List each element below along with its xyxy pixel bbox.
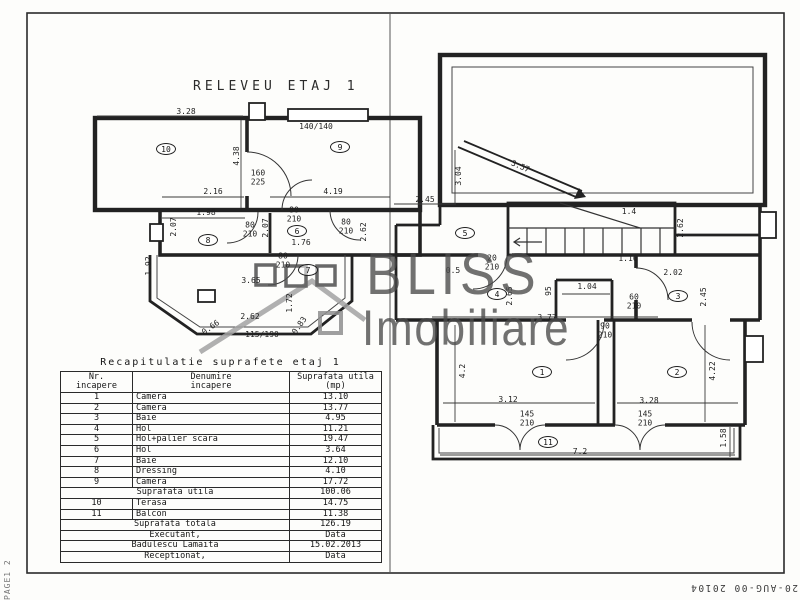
dimension-label: 145 210 [638, 411, 652, 428]
table-header-row: Nr. incapere Denumire incapere Suprafata… [61, 372, 382, 393]
room-number: 11 [538, 436, 558, 448]
table-cell: 13.77 [290, 403, 382, 414]
table-cell: 11.38 [290, 509, 382, 520]
table-row: 8Dressing4.10 [61, 467, 382, 478]
table-cell: Camera [133, 393, 290, 404]
dimension-label: 4.38 [233, 146, 242, 165]
table-cell: 9 [61, 477, 133, 488]
header-nr: Nr. incapere [61, 372, 133, 393]
scanned-document-page: RELEVEU ETAJ 1 3.28140/1404.38160 2252.1… [0, 0, 800, 600]
dimension-label: 145 210 [520, 411, 534, 428]
table-cell: 1 [61, 393, 133, 404]
table-cell: 4 [61, 424, 133, 435]
table-row: Badulescu Lamaita15.02.2013 [61, 541, 382, 552]
table-cell: 8 [61, 467, 133, 478]
header-suprafata: Suprafata utila (mp) [290, 372, 382, 393]
dimension-label: 160 225 [251, 170, 265, 187]
table-row: 7Baie12.10 [61, 456, 382, 467]
room-number: 10 [156, 143, 176, 155]
table-row: 5Hol+palier scara19.47 [61, 435, 382, 446]
table-cell: 3 [61, 414, 133, 425]
header-denumire: Denumire incapere [133, 372, 290, 393]
dimension-label: 3.04 [455, 166, 464, 185]
watermark-house-logo [200, 265, 365, 352]
dimension-label: 3.28 [639, 397, 658, 406]
table-cell: Badulescu Lamaita [61, 541, 290, 552]
table-cell: Suprafata utila [61, 488, 290, 499]
table-cell: Hol [133, 445, 290, 456]
table-cell: 7 [61, 456, 133, 467]
table-cell: Dressing [133, 467, 290, 478]
dimension-label: 2.62 [240, 313, 259, 322]
dimension-label: 1.16 [618, 255, 637, 264]
room-number: 9 [330, 141, 350, 153]
table-row: 9Camera17.72 [61, 477, 382, 488]
table-cell: 11 [61, 509, 133, 520]
table-cell: 4.95 [290, 414, 382, 425]
table-row: 10Terasa14.75 [61, 498, 382, 509]
table-cell: Suprafata totala [61, 520, 290, 531]
dimension-label: 7.2 [573, 448, 587, 457]
header-nr-line2: incapere [76, 381, 117, 391]
table-row: Suprafata utila100.06 [61, 488, 382, 499]
dimension-label: 115/190 [245, 331, 279, 340]
table-cell: 12.10 [290, 456, 382, 467]
areas-table: Nr. incapere Denumire incapere Suprafata… [60, 371, 382, 563]
dimension-label: 1.04 [577, 283, 596, 292]
table-row: 3Baie4.95 [61, 414, 382, 425]
dimension-label: 4.22 [709, 361, 718, 380]
dimension-label: 2.62 [677, 218, 686, 237]
dimension-label: 95 [545, 286, 554, 296]
dimension-label: 80 210 [243, 222, 257, 239]
page-number-label: PAGE1 2 [3, 559, 12, 600]
dimension-label: 80 210 [339, 219, 353, 236]
area-summary-table: Recapitulatie suprafete etaj 1 Nr. incap… [60, 357, 381, 563]
table-row: 6Hol3.64 [61, 445, 382, 456]
table-cell: 100.06 [290, 488, 382, 499]
table-cell: 19.47 [290, 435, 382, 446]
table-row: 4Hol11.21 [61, 424, 382, 435]
room-number: 6 [287, 225, 307, 237]
table-row: 2Camera13.77 [61, 403, 382, 414]
table-row: Executant,Data [61, 530, 382, 541]
table-cell: Hol+palier scara [133, 435, 290, 446]
table-cell: Camera [133, 477, 290, 488]
table-title: Recapitulatie suprafete etaj 1 [60, 357, 381, 368]
table-row: Suprafata totala126.19 [61, 520, 382, 531]
dimension-label: 2.02 [663, 269, 682, 278]
table-cell: 10 [61, 498, 133, 509]
table-cell: Baie [133, 414, 290, 425]
table-cell: 15.02.2013 [290, 541, 382, 552]
room-number: 3 [668, 290, 688, 302]
dimension-label: 1.92 [145, 256, 154, 275]
dimension-label: 4.19 [323, 188, 342, 197]
table-cell: Data [290, 551, 382, 562]
room-number: 1 [532, 366, 552, 378]
dimension-label: 1.58 [720, 428, 729, 447]
table-cell: 3.64 [290, 445, 382, 456]
table-cell: 17.72 [290, 477, 382, 488]
room-number: 2 [667, 366, 687, 378]
dimension-label: 4.2 [459, 364, 468, 378]
dimension-label: 1.4 [622, 208, 636, 217]
dimension-label: 2.07 [170, 217, 179, 236]
table-cell: Terasa [133, 498, 290, 509]
dimension-label: 2.45 [700, 287, 709, 306]
dimension-label: 3.28 [176, 108, 195, 117]
table-cell: Executant, [61, 530, 290, 541]
table-cell: Data [290, 530, 382, 541]
table-cell: 4.10 [290, 467, 382, 478]
scan-stamp: 20-AUG-00 20104 [608, 582, 798, 593]
header-denumire-line2: incapere [191, 381, 232, 391]
room-number: 5 [455, 227, 475, 239]
table-cell: 14.75 [290, 498, 382, 509]
dimension-label: 3.65 [241, 277, 260, 286]
dimension-label: 1.98 [196, 209, 215, 218]
table-cell: Balcon [133, 509, 290, 520]
watermark-text-bliss: BLISS [366, 241, 540, 308]
table-cell: 5 [61, 435, 133, 446]
table-cell: 11.21 [290, 424, 382, 435]
dimension-label: 80 210 [287, 207, 301, 224]
table-cell: Hol [133, 424, 290, 435]
dimension-label: 3.12 [498, 396, 517, 405]
table-cell: 13.10 [290, 393, 382, 404]
table-cell: 6 [61, 445, 133, 456]
dimension-label: 2.07 [262, 218, 271, 237]
table-cell: Receptionat, [61, 551, 290, 562]
dimension-label: 2.45 [415, 196, 434, 205]
dimension-label: 60 210 [627, 294, 641, 311]
room-number: 7 [298, 264, 318, 276]
dimension-label: 140/140 [299, 123, 333, 132]
dimension-label: 2.16 [203, 188, 222, 197]
dimension-label: 80 210 [276, 253, 290, 270]
table-cell: Camera [133, 403, 290, 414]
table-row: 11Balcon11.38 [61, 509, 382, 520]
room-number: 8 [198, 234, 218, 246]
table-row: Receptionat,Data [61, 551, 382, 562]
table-cell: Baie [133, 456, 290, 467]
plan-title: RELEVEU ETAJ 1 [193, 79, 359, 94]
table-cell: 2 [61, 403, 133, 414]
dimension-label: 2.62 [360, 222, 369, 241]
table-cell: 126.19 [290, 520, 382, 531]
header-suprafata-line2: (mp) [325, 381, 345, 391]
dimension-label: 1.76 [291, 239, 310, 248]
watermark-text-imobiliare: Imobiliare [362, 299, 570, 357]
dimension-label: 90 210 [598, 323, 612, 340]
table-row: 1Camera13.10 [61, 393, 382, 404]
dimension-label: 1.72 [286, 293, 295, 312]
